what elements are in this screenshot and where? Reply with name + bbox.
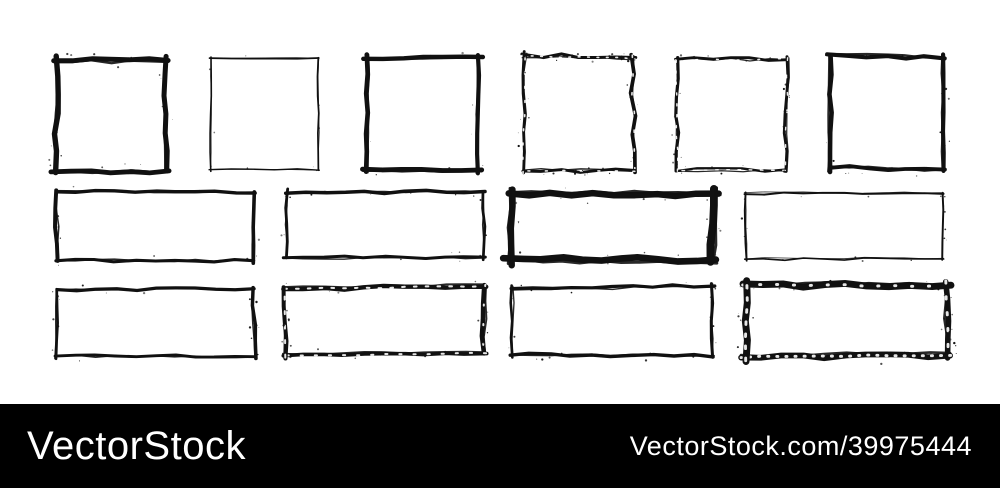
- grunge-frame-square-2: [209, 55, 320, 171]
- grunge-frames-graphic: [0, 0, 1000, 404]
- stock-image-canvas: VectorStock VectorStock.com/39975444: [0, 0, 1000, 488]
- grunge-frame-rect-bot-2: [281, 281, 488, 359]
- grunge-frame-rect-mid-4: [741, 192, 947, 262]
- grunge-frame-rect-bot-1: [52, 284, 260, 361]
- grunge-frame-rect-mid-3: [503, 188, 721, 266]
- grunge-frame-square-5: [671, 54, 789, 174]
- grunge-frame-square-6: [825, 54, 950, 177]
- grunge-frame-rect-bot-4: [737, 280, 957, 365]
- watermark-logo-text: VectorStock: [27, 426, 246, 466]
- grunge-frame-square-4: [518, 52, 638, 176]
- grunge-frame-rect-bot-3: [508, 282, 716, 361]
- grunge-frame-rect-mid-2: [280, 189, 486, 262]
- watermark-url-text: VectorStock.com/39975444: [630, 433, 972, 460]
- grunge-frame-square-3: [363, 52, 484, 175]
- grunge-frame-rect-mid-1: [55, 186, 260, 266]
- grunge-frame-square-1: [48, 53, 173, 173]
- watermark-bar: VectorStock VectorStock.com/39975444: [0, 404, 1000, 488]
